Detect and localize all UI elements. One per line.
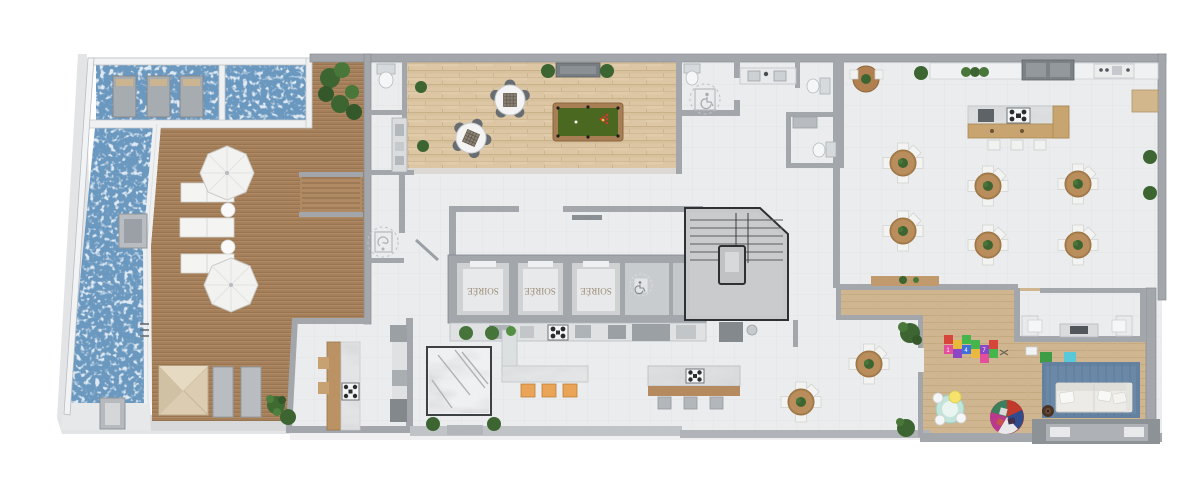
svg-text:SOIRÉE: SOIRÉE (524, 286, 556, 296)
svg-text:SOIRÉE: SOIRÉE (580, 286, 612, 296)
svg-text:SOIRÉE: SOIRÉE (467, 286, 499, 296)
